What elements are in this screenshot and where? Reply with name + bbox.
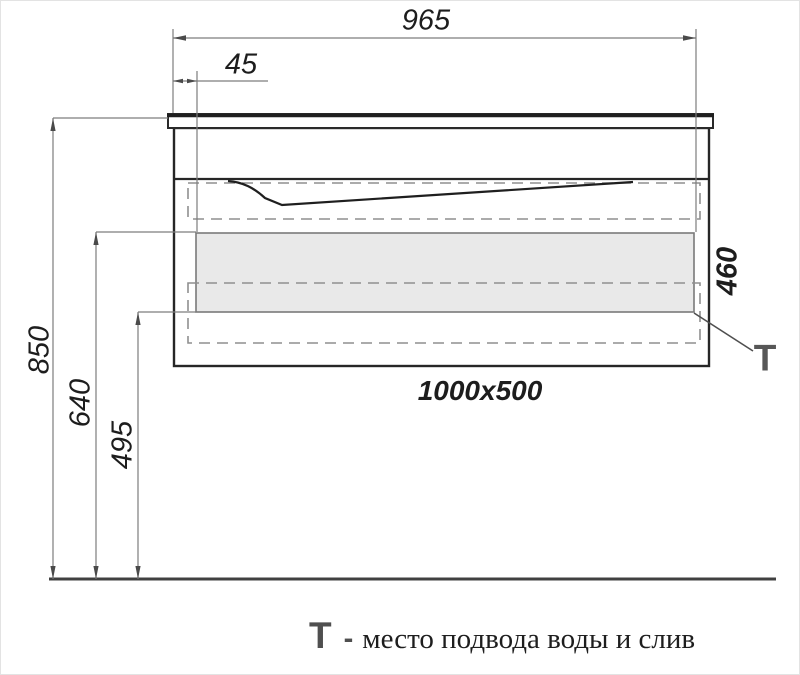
mounting-panel (196, 233, 694, 312)
t-marker: Т (754, 340, 777, 377)
arrow-left-icon (173, 79, 183, 83)
drawing-page: 965 45 850 640 495 460 1000x500 Т Т - ме… (0, 0, 800, 675)
dim-label-460: 460 (714, 247, 743, 295)
dim-label-850: 850 (26, 326, 55, 374)
arrow-right-icon (683, 35, 696, 41)
dim-label-45: 45 (225, 51, 257, 80)
arrow-down-icon (93, 566, 98, 579)
arrow-up-icon (135, 312, 140, 325)
arrow-right-icon (187, 79, 197, 83)
size-label-1000x500: 1000x500 (418, 377, 543, 405)
legend-separator: - (344, 623, 354, 656)
arrow-down-icon (135, 566, 140, 579)
dim-850-lines (53, 118, 168, 579)
arrow-down-icon (50, 566, 55, 579)
legend: Т - место подвода воды и слив (309, 617, 695, 656)
countertop (167, 114, 714, 128)
dim-label-965: 965 (402, 7, 450, 36)
cabinet-dimension-drawing (1, 1, 799, 674)
dim-label-495: 495 (109, 421, 138, 469)
legend-text: место подвода воды и слив (362, 623, 695, 656)
legend-t-marker: Т (309, 617, 332, 654)
dim-label-640: 640 (67, 379, 96, 427)
arrow-left-icon (173, 35, 186, 41)
arrow-up-icon (93, 232, 98, 245)
arrow-up-icon (50, 118, 55, 131)
